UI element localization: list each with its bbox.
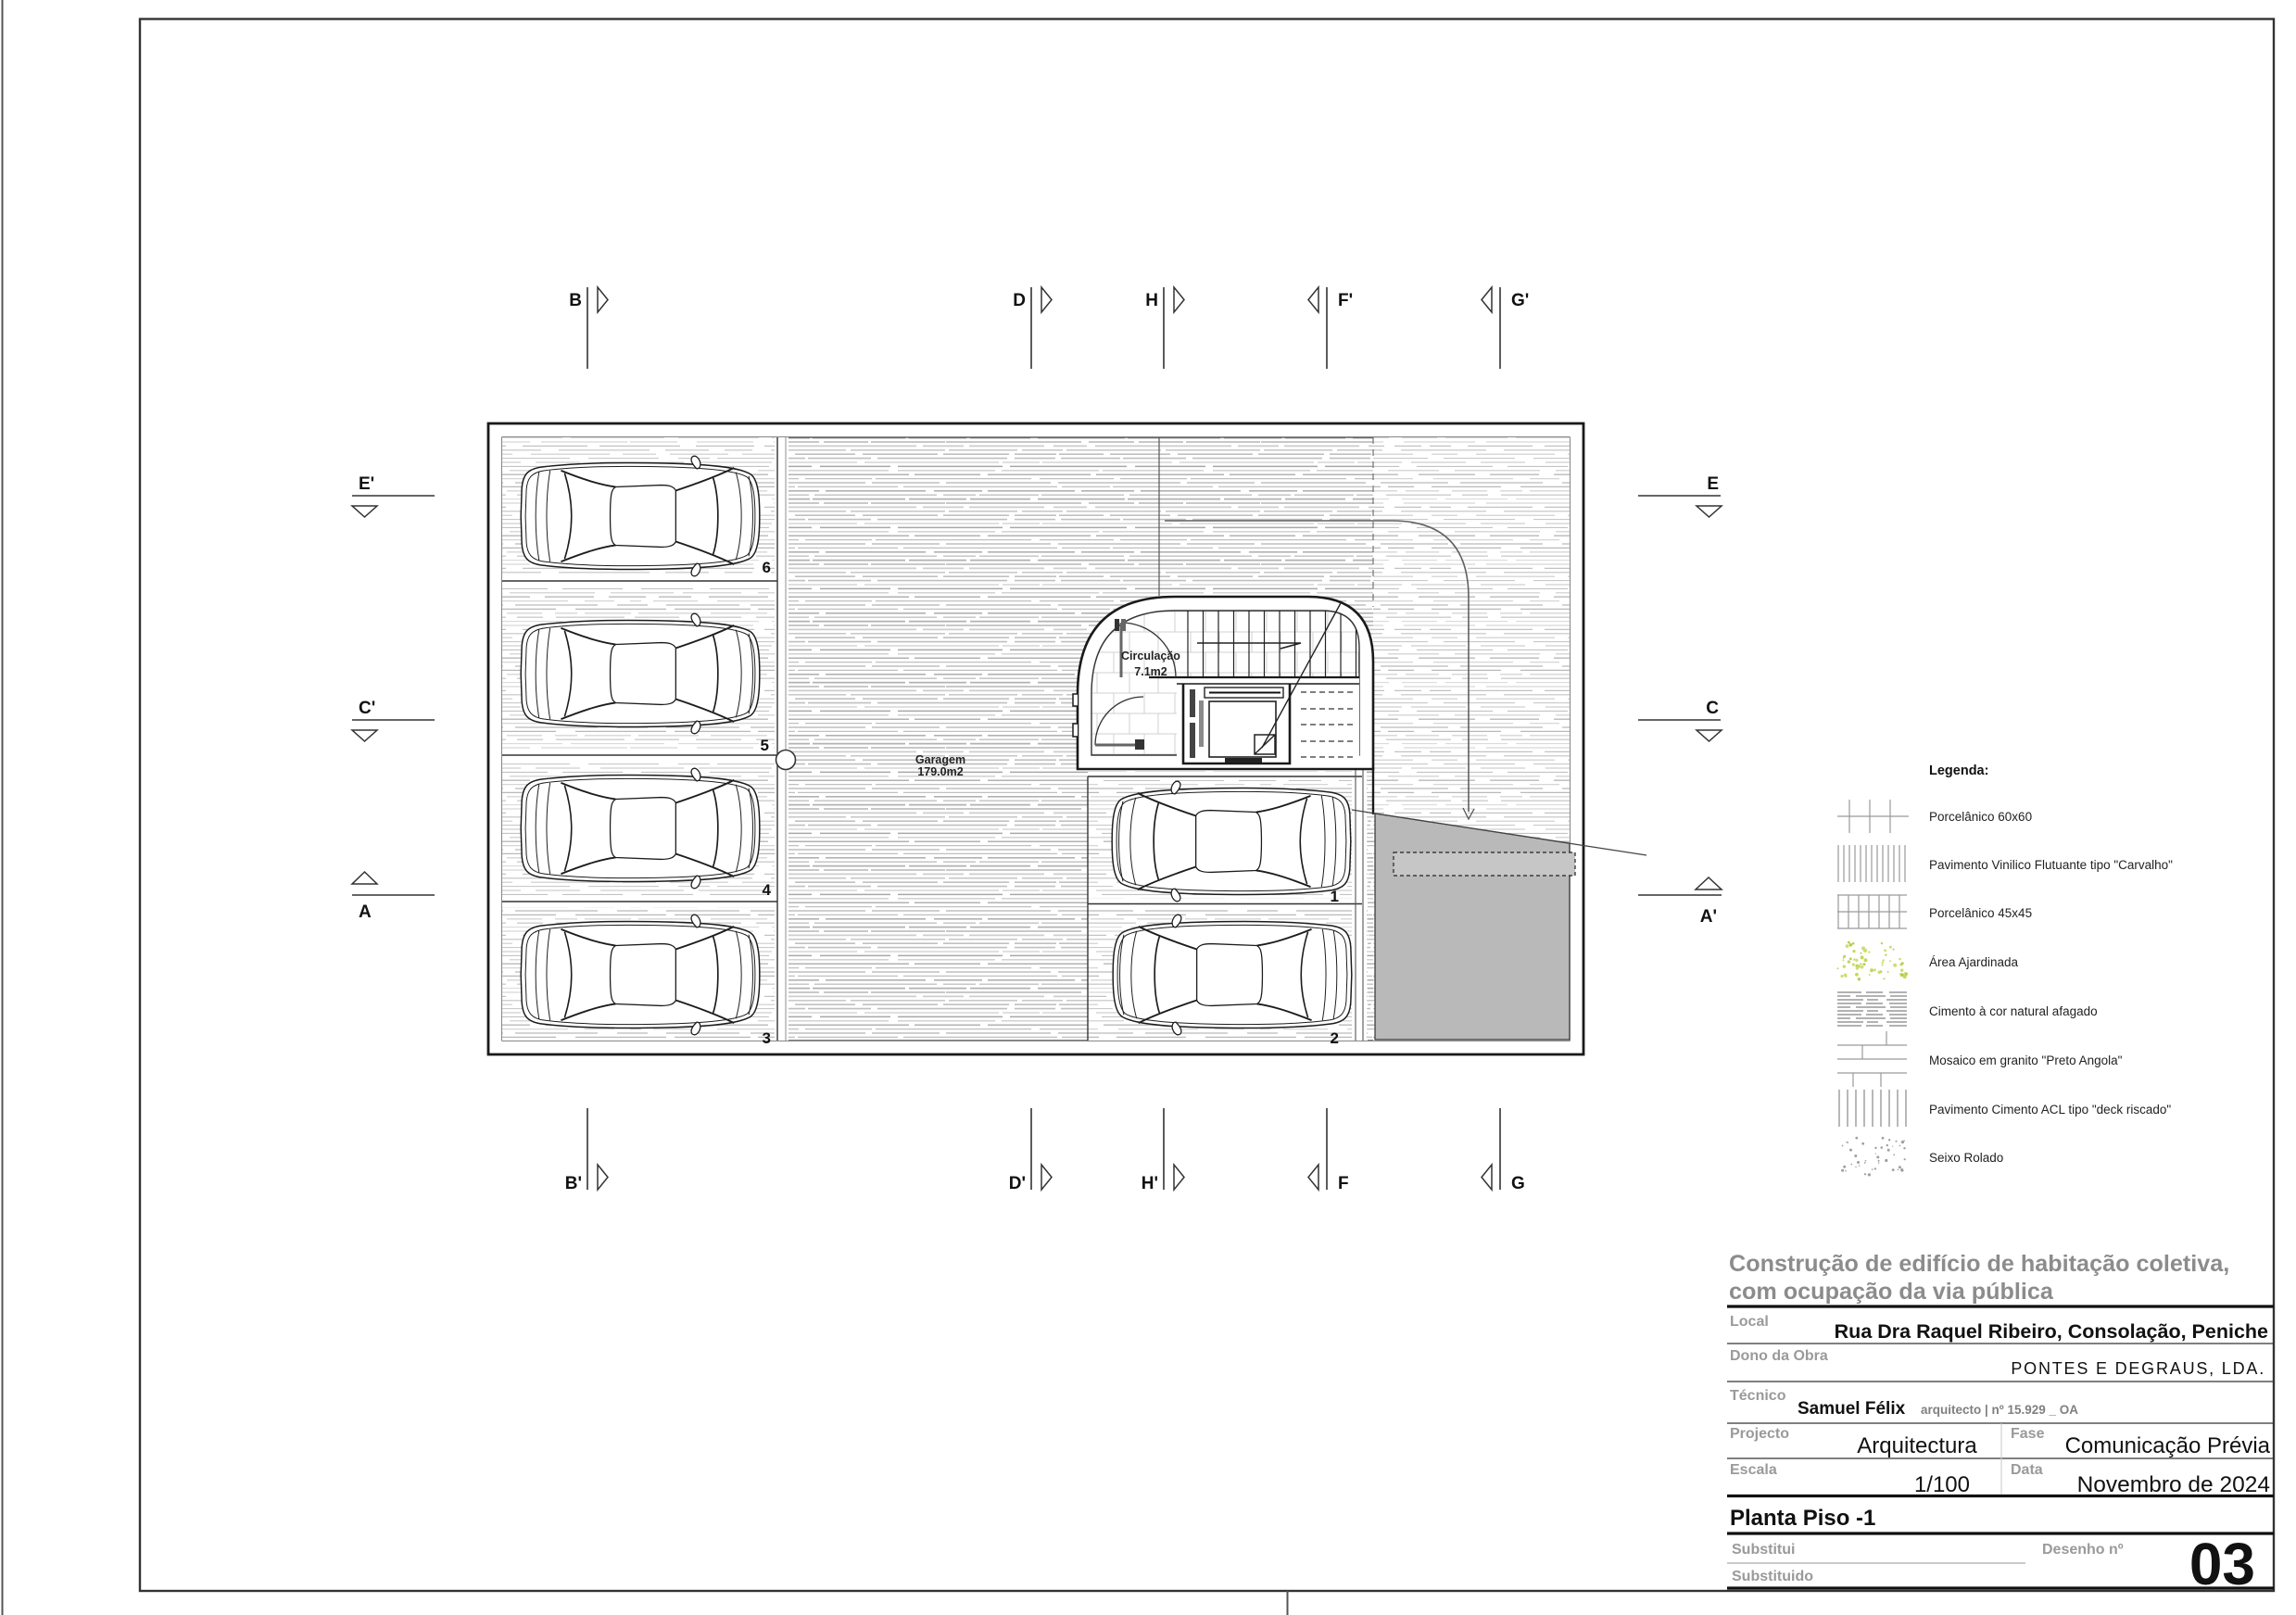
svg-text:03: 03 <box>2189 1531 2255 1597</box>
svg-text:2: 2 <box>1331 1029 1339 1047</box>
svg-text:G: G <box>1511 1174 1525 1193</box>
svg-text:H': H' <box>1142 1174 1158 1193</box>
svg-text:1: 1 <box>1331 888 1339 905</box>
svg-text:B: B <box>569 291 582 310</box>
svg-text:4: 4 <box>763 881 772 899</box>
svg-text:Seixo Rolado: Seixo Rolado <box>1929 1151 2003 1165</box>
svg-text:3: 3 <box>763 1029 771 1047</box>
svg-text:Comunicação Prévia: Comunicação Prévia <box>2065 1433 2271 1458</box>
svg-text:D: D <box>1013 291 1026 310</box>
svg-text:Construção de edifício de habi: Construção de edifício de habitação cole… <box>1729 1251 2229 1277</box>
svg-text:Substituido: Substituido <box>1732 1569 1813 1584</box>
svg-text:Cimento à cor natural afagado: Cimento à cor natural afagado <box>1929 1004 2098 1018</box>
svg-text:Pavimento Cimento ACL tipo "de: Pavimento Cimento ACL tipo "deck riscado… <box>1929 1103 2171 1117</box>
svg-text:B': B' <box>565 1174 582 1193</box>
svg-text:Desenho nº: Desenho nº <box>2042 1542 2124 1558</box>
svg-text:Samuel Félix: Samuel Félix <box>1798 1399 1906 1419</box>
svg-text:D': D' <box>1009 1174 1026 1193</box>
svg-text:Mosaico em granito "Preto Ango: Mosaico em granito "Preto Angola" <box>1929 1054 2123 1067</box>
svg-text:E: E <box>1707 474 1719 494</box>
svg-text:Planta Piso -1: Planta Piso -1 <box>1730 1506 1875 1531</box>
svg-text:Substitui: Substitui <box>1732 1542 1795 1558</box>
svg-text:Novembro de 2024: Novembro de 2024 <box>2077 1472 2270 1497</box>
svg-text:Técnico: Técnico <box>1730 1388 1786 1404</box>
svg-text:6: 6 <box>763 559 771 576</box>
svg-text:7.1m2: 7.1m2 <box>1134 665 1167 678</box>
svg-text:Local: Local <box>1730 1314 1769 1330</box>
svg-text:Área Ajardinada: Área Ajardinada <box>1929 955 2019 969</box>
svg-text:Fase: Fase <box>2011 1426 2045 1442</box>
svg-text:Arquitectura: Arquitectura <box>1857 1433 1977 1458</box>
svg-text:Porcelânico 60x60: Porcelânico 60x60 <box>1929 810 2032 824</box>
svg-text:H: H <box>1145 291 1158 310</box>
svg-text:Rua Dra Raquel Ribeiro, Consol: Rua Dra Raquel Ribeiro, Consolação, Peni… <box>1835 1320 2268 1343</box>
svg-text:F: F <box>1338 1174 1349 1193</box>
svg-text:E': E' <box>359 474 374 494</box>
svg-text:arquitecto | nº 15.929 _ OA: arquitecto | nº 15.929 _ OA <box>1921 1403 2078 1417</box>
svg-text:1/100: 1/100 <box>1914 1472 1970 1497</box>
svg-text:C': C' <box>359 699 375 718</box>
svg-text:A: A <box>359 902 372 922</box>
svg-text:5: 5 <box>761 737 769 754</box>
svg-text:179.0m2: 179.0m2 <box>917 765 963 778</box>
svg-text:G': G' <box>1511 291 1529 310</box>
svg-text:C: C <box>1706 699 1719 718</box>
svg-text:Garagem: Garagem <box>915 753 965 766</box>
svg-text:F': F' <box>1338 291 1353 310</box>
svg-text:Legenda:: Legenda: <box>1929 763 1988 778</box>
svg-text:Porcelânico 45x45: Porcelânico 45x45 <box>1929 906 2032 920</box>
svg-text:PONTES E DEGRAUS, LDA.: PONTES E DEGRAUS, LDA. <box>2011 1359 2265 1378</box>
svg-text:Circulação: Circulação <box>1121 650 1180 662</box>
svg-text:Dono da Obra: Dono da Obra <box>1730 1348 1828 1364</box>
svg-text:A': A' <box>1700 907 1717 927</box>
svg-text:Escala: Escala <box>1730 1462 1777 1478</box>
svg-text:Projecto: Projecto <box>1730 1426 1789 1442</box>
svg-text:Pavimento Vinilico Flutuante t: Pavimento Vinilico Flutuante tipo "Carva… <box>1929 858 2173 872</box>
svg-text:Data: Data <box>2011 1462 2043 1478</box>
svg-text:com ocupação da via pública: com ocupação da via pública <box>1729 1279 2054 1305</box>
